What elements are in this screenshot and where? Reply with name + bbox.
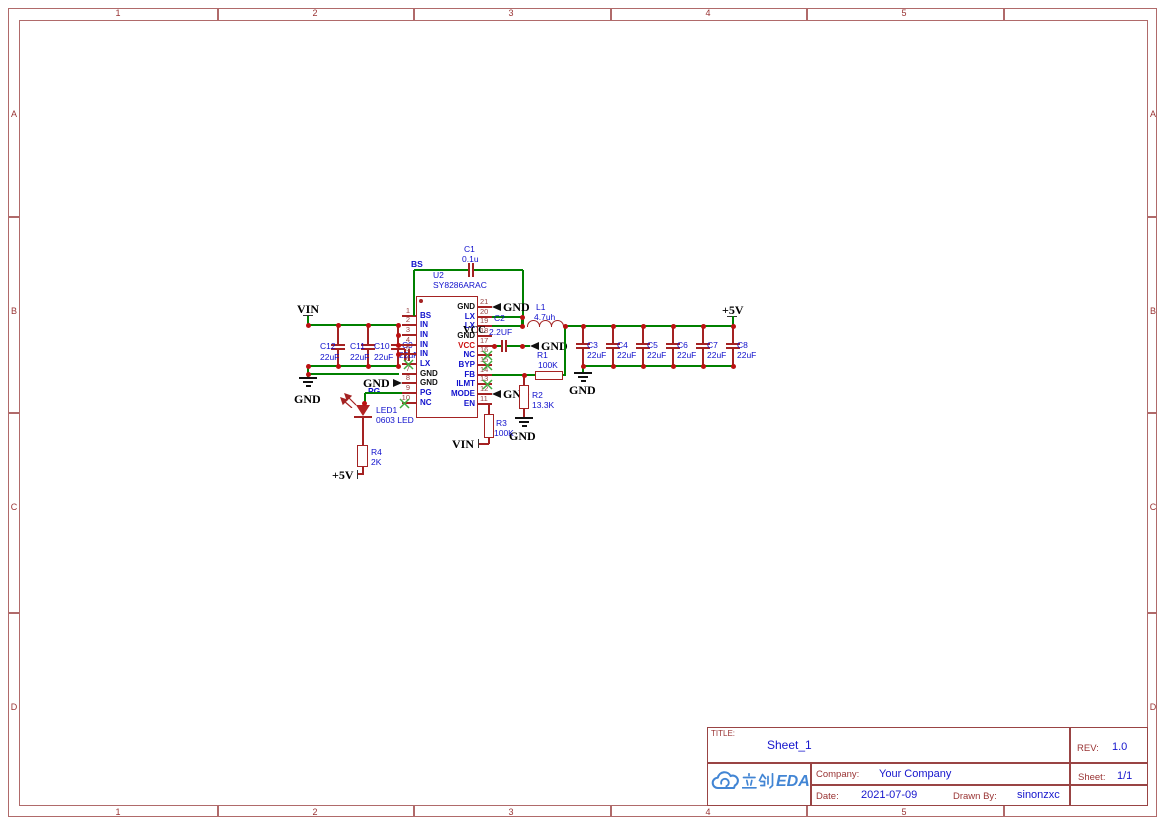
wire[interactable] — [308, 324, 399, 326]
value-c6[interactable]: 22uF — [677, 351, 696, 360]
ref-r3[interactable]: R3 — [496, 419, 507, 428]
rev-value[interactable]: 1.0 — [1112, 742, 1127, 753]
net-label-gnd[interactable]: GND — [569, 384, 596, 396]
no-connect-icon — [482, 379, 493, 390]
frame-divider — [1148, 412, 1157, 414]
gnd-earth-bar — [578, 376, 588, 378]
lceda-logo-text: EDA — [776, 774, 810, 790]
junction-dot — [563, 324, 568, 329]
value-c5[interactable]: 22uF — [647, 351, 666, 360]
net-label-gnd[interactable]: GND — [294, 393, 321, 405]
junction-dot — [581, 364, 586, 369]
gnd-earth-bar — [581, 380, 586, 382]
wire[interactable] — [507, 345, 530, 347]
ref-c3[interactable]: C3 — [587, 341, 598, 350]
frame-divider — [806, 806, 808, 817]
junction-dot — [701, 324, 706, 329]
frame-divider — [610, 8, 612, 20]
pin-number: 17 — [480, 337, 488, 345]
wire[interactable] — [583, 365, 734, 367]
pin-name: IN — [420, 321, 428, 329]
pin-number: 21 — [480, 298, 488, 306]
frame-divider — [8, 412, 19, 414]
junction-dot — [306, 372, 311, 377]
ref-r1[interactable]: R1 — [537, 351, 548, 360]
frame-col-label: 5 — [894, 808, 914, 817]
value-c11[interactable]: 22uF — [350, 353, 369, 362]
no-connect-icon — [403, 359, 414, 370]
schematic-canvas: 1 2 3 4 5 1 2 3 4 5 A B C D A B C D VIN … — [0, 0, 1169, 827]
net-label-gnd[interactable]: GND — [503, 301, 530, 313]
pin-name: IN — [420, 331, 428, 339]
frame-divider — [610, 806, 612, 817]
ref-c11[interactable]: C11 — [350, 342, 365, 351]
junction-dot — [366, 364, 371, 369]
junction-dot — [731, 364, 736, 369]
pin-lead — [362, 418, 364, 445]
drawn-by-value[interactable]: sinonzxc — [1017, 790, 1060, 801]
junction-dot — [396, 364, 401, 369]
frame-divider — [1003, 806, 1005, 817]
ref-c4[interactable]: C4 — [617, 341, 628, 350]
value-r1[interactable]: 100K — [538, 361, 558, 370]
ref-c5[interactable]: C5 — [647, 341, 658, 350]
junction-dot — [522, 373, 527, 378]
lceda-logo-cjk — [742, 773, 775, 790]
part-u2[interactable]: SY8286ARAC — [433, 281, 487, 290]
pin-name: IN — [420, 350, 428, 358]
junction-dot — [520, 344, 525, 349]
frame-divider — [217, 8, 219, 20]
gnd-flag-icon — [530, 342, 539, 350]
frame-col-label: 1 — [108, 9, 128, 18]
wire[interactable] — [564, 325, 733, 327]
wire[interactable] — [365, 392, 402, 394]
frame-row-label: B — [9, 307, 19, 316]
pin-number: 11 — [480, 395, 488, 403]
frame-col-label: 4 — [698, 9, 718, 18]
junction-dot — [731, 324, 736, 329]
resistor-r4[interactable] — [357, 445, 368, 467]
frame-col-label: 4 — [698, 808, 718, 817]
company-label: Company: — [816, 770, 859, 780]
wire[interactable] — [308, 365, 398, 367]
net-label-vcc[interactable]: VCC — [463, 326, 486, 337]
pin-lead — [479, 443, 489, 445]
pin-number: 1 — [394, 307, 410, 315]
titleblock-line — [810, 784, 1148, 786]
ref-led1[interactable]: LED1 — [376, 406, 397, 415]
no-connect-icon — [399, 398, 410, 409]
resistor-r3[interactable] — [484, 414, 494, 438]
junction-dot — [671, 364, 676, 369]
wire[interactable] — [414, 269, 468, 271]
junction-dot — [641, 364, 646, 369]
frame-divider — [1148, 612, 1157, 614]
pin-name: GND — [428, 303, 475, 311]
pin-lead — [523, 409, 525, 417]
ref-r2[interactable]: R2 — [532, 391, 543, 400]
net-label-5v[interactable]: +5V — [722, 304, 744, 316]
ref-c12[interactable]: C12 — [320, 342, 336, 351]
ref-c10[interactable]: C10 — [374, 342, 390, 351]
gnd-flag-icon — [492, 390, 501, 398]
gnd-earth-bar — [303, 381, 313, 383]
sheet-title[interactable]: Sheet_1 — [767, 739, 812, 751]
pin-name: VCC — [428, 342, 475, 350]
date-value[interactable]: 2021-07-09 — [861, 790, 917, 801]
junction-dot — [701, 364, 706, 369]
titleblock-line — [1069, 727, 1071, 806]
ref-c6[interactable]: C6 — [677, 341, 688, 350]
value-r4[interactable]: 2K — [371, 458, 381, 467]
pin-name: MODE — [428, 390, 475, 398]
gnd-earth-icon — [299, 377, 317, 379]
ref-r4[interactable]: R4 — [371, 448, 382, 457]
ref-c7[interactable]: C7 — [707, 341, 718, 350]
junction-dot — [336, 364, 341, 369]
gnd-earth-icon — [574, 372, 592, 374]
junction-dot — [611, 364, 616, 369]
net-label-bracket — [478, 439, 479, 448]
wire[interactable] — [413, 270, 415, 316]
frame-row-label: A — [1148, 110, 1158, 119]
sheet-label: Sheet: — [1078, 773, 1105, 783]
frame-divider — [8, 612, 19, 614]
pin-name: EN — [428, 400, 475, 408]
net-label-bracket — [357, 470, 358, 479]
wire[interactable] — [564, 326, 566, 375]
frame-col-label: 5 — [894, 9, 914, 18]
no-connect-icon — [482, 360, 493, 371]
ref-c1[interactable]: C1 — [464, 245, 475, 254]
junction-dot — [336, 323, 341, 328]
pin-name: BYP — [428, 361, 475, 369]
junction-dot — [611, 324, 616, 329]
pin-name: ILMT — [428, 380, 475, 388]
junction-dot — [581, 324, 586, 329]
junction-dot — [671, 324, 676, 329]
pin-lead — [488, 404, 490, 414]
junction-dot — [641, 324, 646, 329]
junction-dot — [396, 323, 401, 328]
junction-dot — [396, 343, 401, 348]
ref-c2[interactable]: C2 — [494, 314, 505, 323]
capacitor-c2[interactable] — [501, 340, 503, 352]
frame-row-label: C — [1148, 503, 1158, 512]
wire[interactable] — [308, 373, 399, 375]
net-label-5v[interactable]: +5V — [332, 469, 354, 481]
frame-row-label: C — [9, 503, 19, 512]
value-c8[interactable]: 22uF — [737, 351, 756, 360]
value-r2[interactable]: 13.3K — [532, 401, 554, 410]
lceda-logo-cloud-icon — [711, 770, 740, 794]
pin-number: 19 — [480, 317, 488, 325]
value-c12[interactable]: 22uF — [320, 353, 339, 362]
pin-name: IN — [420, 341, 428, 349]
pin-name: NC — [428, 351, 475, 359]
value-c4[interactable]: 22uF — [617, 351, 636, 360]
frame-divider — [806, 8, 808, 20]
junction-dot — [306, 364, 311, 369]
title-label: TITLE: — [711, 730, 735, 738]
frame-divider — [413, 8, 415, 20]
value-r3[interactable]: 100K — [494, 429, 514, 438]
junction-dot — [520, 315, 525, 320]
pin-name: FB — [428, 371, 475, 379]
net-label-bs[interactable]: BS — [411, 260, 423, 269]
frame-divider — [217, 806, 219, 817]
gnd-earth-bar — [306, 385, 311, 387]
drawn-by-label: Drawn By: — [953, 792, 997, 802]
frame-divider — [1003, 8, 1005, 20]
frame-col-label: 2 — [305, 9, 325, 18]
pin-lead — [358, 473, 364, 475]
value-l1[interactable]: 4.7uh — [534, 313, 555, 322]
sheet-value[interactable]: 1/1 — [1117, 771, 1132, 782]
junction-dot — [362, 401, 367, 406]
frame-divider — [413, 806, 415, 817]
wire[interactable] — [474, 269, 523, 271]
rev-label: REV: — [1077, 744, 1099, 754]
junction-dot — [492, 344, 497, 349]
value-c7[interactable]: 22uF — [707, 351, 726, 360]
value-c1[interactable]: 0.1u — [462, 255, 479, 264]
titleblock-line — [810, 762, 812, 806]
titleblock-line — [707, 762, 1148, 764]
pin1-indicator-dot — [419, 299, 423, 303]
led-led1[interactable] — [356, 405, 370, 416]
ref-c8[interactable]: C8 — [737, 341, 748, 350]
gnd-flag-icon — [492, 303, 501, 311]
junction-dot — [366, 323, 371, 328]
frame-divider — [1148, 216, 1157, 218]
frame-divider — [8, 216, 19, 218]
date-label: Date: — [816, 792, 839, 802]
company-value[interactable]: Your Company — [879, 769, 951, 780]
value-c10[interactable]: 22uF — [374, 353, 393, 362]
value-c3[interactable]: 22uF — [587, 351, 606, 360]
wire[interactable] — [492, 374, 535, 376]
value-c2[interactable]: 2.2UF — [489, 328, 512, 337]
ref-u2[interactable]: U2 — [433, 271, 444, 280]
resistor-r1[interactable] — [535, 371, 563, 380]
net-label-vin[interactable]: VIN — [452, 438, 474, 450]
value-led1[interactable]: 0603 LED — [376, 416, 414, 425]
net-label-vin[interactable]: VIN — [297, 303, 319, 315]
pin-number: 20 — [480, 308, 488, 316]
gnd-earth-bar — [522, 425, 527, 427]
frame-row-label: D — [1148, 703, 1158, 712]
frame-col-label: 1 — [108, 808, 128, 817]
junction-dot — [520, 324, 525, 329]
resistor-r2[interactable] — [519, 385, 529, 409]
frame-inner-border — [19, 20, 1148, 806]
frame-row-label: A — [9, 110, 19, 119]
ref-l1[interactable]: L1 — [536, 303, 545, 312]
junction-dot — [396, 352, 401, 357]
frame-row-label: B — [1148, 307, 1158, 316]
gnd-earth-icon — [515, 417, 533, 419]
junction-dot — [306, 323, 311, 328]
junction-dot — [396, 333, 401, 338]
gnd-earth-bar — [519, 421, 529, 423]
capacitor-c1[interactable] — [468, 263, 470, 277]
frame-col-label: 2 — [305, 808, 325, 817]
frame-col-label: 3 — [501, 808, 521, 817]
gnd-flag-icon — [393, 379, 402, 387]
frame-row-label: D — [9, 703, 19, 712]
pin-name: LX — [428, 313, 475, 321]
frame-col-label: 3 — [501, 9, 521, 18]
